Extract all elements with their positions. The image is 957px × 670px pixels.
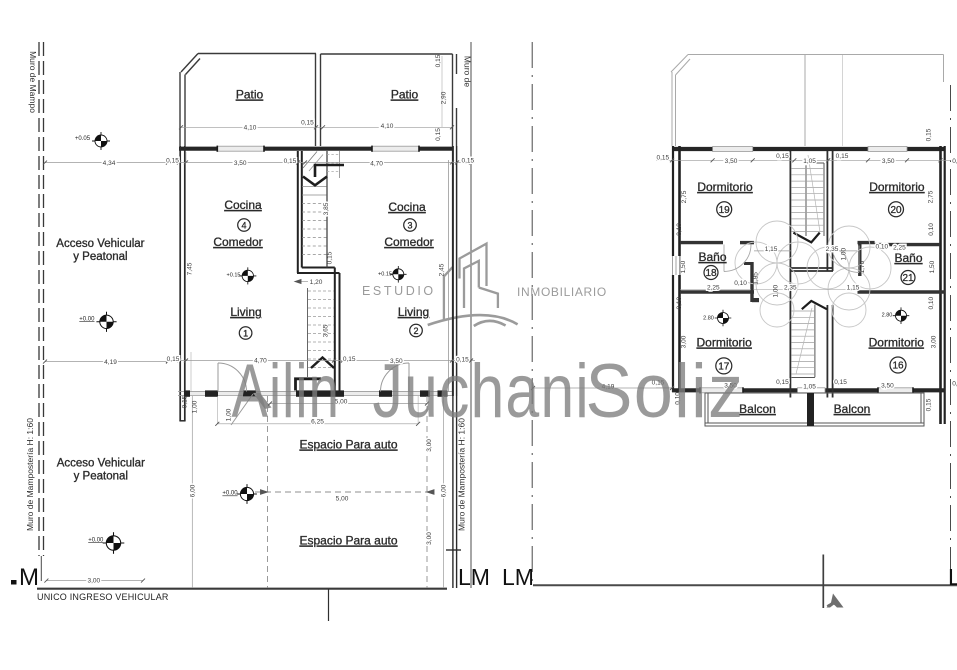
svg-text:1: 1 xyxy=(243,328,248,338)
svg-text:2,45: 2,45 xyxy=(439,263,446,276)
svg-text:3,00: 3,00 xyxy=(426,439,433,452)
svg-text:Muro de Mampostería H: 1:60: Muro de Mampostería H: 1:60 xyxy=(25,418,35,531)
svg-text:1,00: 1,00 xyxy=(192,400,199,413)
svg-text:3,00: 3,00 xyxy=(681,335,688,348)
svg-text:Balcon: Balcon xyxy=(834,402,871,416)
svg-text:5,00: 5,00 xyxy=(336,495,349,502)
svg-text:0,10: 0,10 xyxy=(875,244,888,251)
svg-text:Muro de Mampostería H: 1:60: Muro de Mampostería H: 1:60 xyxy=(457,418,467,531)
svg-text:0,15: 0,15 xyxy=(301,119,314,126)
svg-text:Dormitorio: Dormitorio xyxy=(869,180,925,194)
svg-text:UNICO INGRESO VEHICULAR: UNICO INGRESO VEHICULAR xyxy=(37,592,169,602)
svg-text:1,50: 1,50 xyxy=(929,260,936,273)
svg-text:Baño: Baño xyxy=(894,251,922,265)
svg-text:Living: Living xyxy=(398,305,429,319)
svg-text:y Peatonal: y Peatonal xyxy=(73,251,127,263)
svg-text:2,75: 2,75 xyxy=(681,190,688,203)
svg-text:Espacio Para auto: Espacio Para auto xyxy=(299,438,397,452)
svg-text:Living: Living xyxy=(230,305,261,319)
svg-text:0,15: 0,15 xyxy=(926,398,933,411)
svg-text:20: 20 xyxy=(890,205,902,216)
svg-text:1,50: 1,50 xyxy=(680,260,687,273)
svg-text:Patio: Patio xyxy=(236,88,264,102)
svg-text:0,10: 0,10 xyxy=(928,223,935,236)
svg-text:2,25: 2,25 xyxy=(707,285,720,292)
svg-text:2,25: 2,25 xyxy=(893,245,906,252)
svg-text:0,15: 0,15 xyxy=(926,128,933,141)
svg-text:3,50: 3,50 xyxy=(881,383,894,390)
svg-text:+0.00: +0.00 xyxy=(88,537,104,543)
svg-text:7,45: 7,45 xyxy=(187,262,194,275)
svg-text:+0.15: +0.15 xyxy=(227,272,241,278)
svg-text:1,70: 1,70 xyxy=(859,260,866,273)
svg-text:0,: 0, xyxy=(952,381,957,388)
svg-text:Muro de: Muro de xyxy=(463,56,473,87)
svg-text:LM: LM xyxy=(948,564,957,590)
svg-text:0,15: 0,15 xyxy=(166,157,179,164)
svg-text:3,50: 3,50 xyxy=(234,160,247,167)
svg-text:Juchani: Juchani xyxy=(373,349,590,434)
svg-text:M: M xyxy=(19,564,39,591)
svg-text:3,85: 3,85 xyxy=(323,202,330,215)
svg-text:INMOBILIARIO: INMOBILIARIO xyxy=(517,285,607,299)
svg-text:0,15: 0,15 xyxy=(284,158,297,165)
svg-text:Acceso Vehicular: Acceso Vehicular xyxy=(56,238,144,250)
svg-text:1,15: 1,15 xyxy=(847,285,860,292)
svg-text:+0.00: +0.00 xyxy=(79,316,95,322)
svg-text:1,15: 1,15 xyxy=(765,246,778,253)
svg-text:Dormitorio: Dormitorio xyxy=(697,336,753,350)
svg-text:1,00: 1,00 xyxy=(841,247,848,260)
svg-text:Cocina: Cocina xyxy=(388,200,426,214)
svg-text:2,75: 2,75 xyxy=(928,190,935,203)
svg-text:2: 2 xyxy=(413,326,418,336)
svg-text:3,00: 3,00 xyxy=(426,532,433,545)
svg-text:19: 19 xyxy=(719,205,731,216)
svg-text:1,00: 1,00 xyxy=(772,284,779,297)
svg-text:3: 3 xyxy=(407,220,412,230)
svg-text:0,15: 0,15 xyxy=(834,379,847,386)
svg-text:16: 16 xyxy=(892,361,904,372)
svg-text:3,00: 3,00 xyxy=(87,578,100,585)
svg-text:LM: LM xyxy=(458,564,490,590)
svg-text:0,15: 0,15 xyxy=(836,153,849,160)
svg-text:0,15: 0,15 xyxy=(327,251,334,264)
svg-text:2,35: 2,35 xyxy=(784,285,797,292)
svg-text:4,34: 4,34 xyxy=(103,160,116,167)
svg-text:Cocina: Cocina xyxy=(224,198,262,212)
svg-text:Dormitorio: Dormitorio xyxy=(697,180,753,194)
svg-text:Balcon: Balcon xyxy=(739,402,776,416)
svg-text:4,10: 4,10 xyxy=(244,124,257,131)
svg-text:+0.00: +0.00 xyxy=(222,491,238,497)
svg-text:2,90: 2,90 xyxy=(441,91,448,104)
svg-text:LM: LM xyxy=(502,564,534,590)
svg-text:0,10: 0,10 xyxy=(676,296,683,309)
svg-text:4,19: 4,19 xyxy=(104,359,117,366)
svg-text:Ailin: Ailin xyxy=(232,349,340,434)
svg-text:3,65: 3,65 xyxy=(323,324,330,337)
svg-text:6,00: 6,00 xyxy=(441,484,448,497)
svg-text:0,15: 0,15 xyxy=(435,128,442,141)
svg-text:Comedor: Comedor xyxy=(213,235,262,249)
svg-text:2,35: 2,35 xyxy=(826,246,839,253)
svg-text:Baño: Baño xyxy=(698,250,726,264)
svg-text:1,20: 1,20 xyxy=(310,279,323,286)
svg-text:0,15: 0,15 xyxy=(182,395,189,408)
svg-text:0,15: 0,15 xyxy=(343,356,356,363)
svg-text:1,05: 1,05 xyxy=(803,158,816,165)
svg-text:1,95: 1,95 xyxy=(752,272,759,285)
svg-text:+0.05: +0.05 xyxy=(75,136,91,142)
svg-text:4,70: 4,70 xyxy=(370,161,383,168)
svg-text:0,15: 0,15 xyxy=(435,54,442,67)
svg-text:Comedor: Comedor xyxy=(384,235,433,249)
svg-text:0,: 0, xyxy=(952,158,957,165)
svg-text:3,50: 3,50 xyxy=(882,158,895,165)
svg-text:0,15: 0,15 xyxy=(656,155,669,162)
svg-text:Soliz: Soliz xyxy=(586,349,745,434)
svg-text:0,15: 0,15 xyxy=(167,356,180,363)
svg-text:Espacio Para auto: Espacio Para auto xyxy=(299,534,397,548)
svg-text:2.80: 2.80 xyxy=(882,313,893,319)
svg-text:ESTUDIO: ESTUDIO xyxy=(362,284,436,298)
svg-text:1,05: 1,05 xyxy=(803,383,816,390)
svg-text:2.80: 2.80 xyxy=(703,316,714,322)
svg-text:18: 18 xyxy=(705,268,717,279)
svg-text:Acceso Vehicular: Acceso Vehicular xyxy=(57,458,145,470)
svg-text:y Peatonal: y Peatonal xyxy=(74,471,128,483)
svg-text:21: 21 xyxy=(902,273,914,284)
svg-text:3,50: 3,50 xyxy=(725,158,738,165)
svg-text:0,15: 0,15 xyxy=(776,379,789,386)
svg-text:4: 4 xyxy=(241,220,246,230)
svg-text:0,15: 0,15 xyxy=(461,157,474,164)
svg-text:Muro de Mampo: Muro de Mampo xyxy=(28,51,38,113)
svg-text:Dormitorio: Dormitorio xyxy=(869,336,925,350)
svg-text:+0.15: +0.15 xyxy=(378,271,392,277)
svg-text:0,10: 0,10 xyxy=(928,296,935,309)
svg-text:Patio: Patio xyxy=(391,88,419,102)
svg-text:6,00: 6,00 xyxy=(189,484,196,497)
svg-text:0,10: 0,10 xyxy=(676,223,683,236)
svg-text:3,00: 3,00 xyxy=(930,335,937,348)
svg-text:4,10: 4,10 xyxy=(381,123,394,130)
svg-text:0,15: 0,15 xyxy=(776,153,789,160)
svg-text:0,10: 0,10 xyxy=(734,280,747,287)
